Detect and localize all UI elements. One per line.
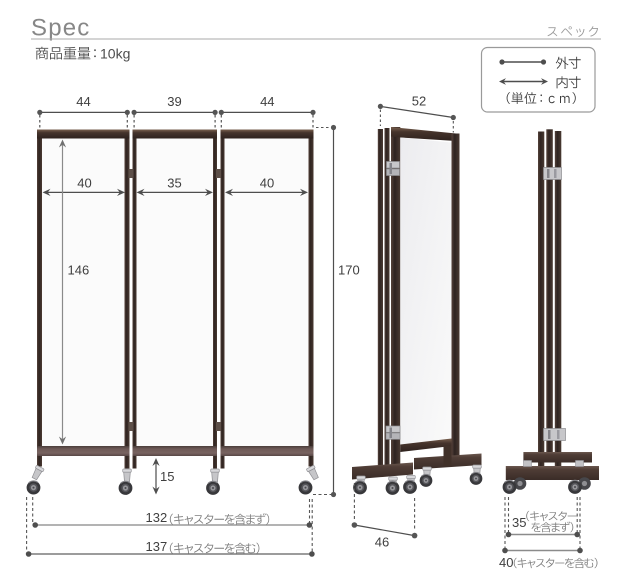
svg-text:44: 44 — [260, 94, 274, 109]
svg-text:35: 35 — [512, 515, 526, 530]
svg-text:46: 46 — [375, 535, 389, 550]
svg-text:132: 132 — [146, 510, 168, 525]
svg-text:10kg: 10kg — [100, 46, 130, 62]
svg-text:40: 40 — [260, 176, 274, 191]
svg-text:40: 40 — [77, 176, 91, 191]
svg-text:39: 39 — [167, 94, 181, 109]
svg-text:40: 40 — [499, 555, 513, 570]
svg-text:44: 44 — [76, 94, 90, 109]
svg-text:35: 35 — [167, 176, 181, 191]
svg-text:170: 170 — [338, 263, 360, 278]
svg-text:137: 137 — [146, 539, 168, 554]
svg-text:52: 52 — [412, 94, 426, 109]
svg-text:146: 146 — [68, 263, 90, 278]
svg-text:15: 15 — [160, 469, 174, 484]
svg-text:Spec: Spec — [31, 15, 91, 42]
